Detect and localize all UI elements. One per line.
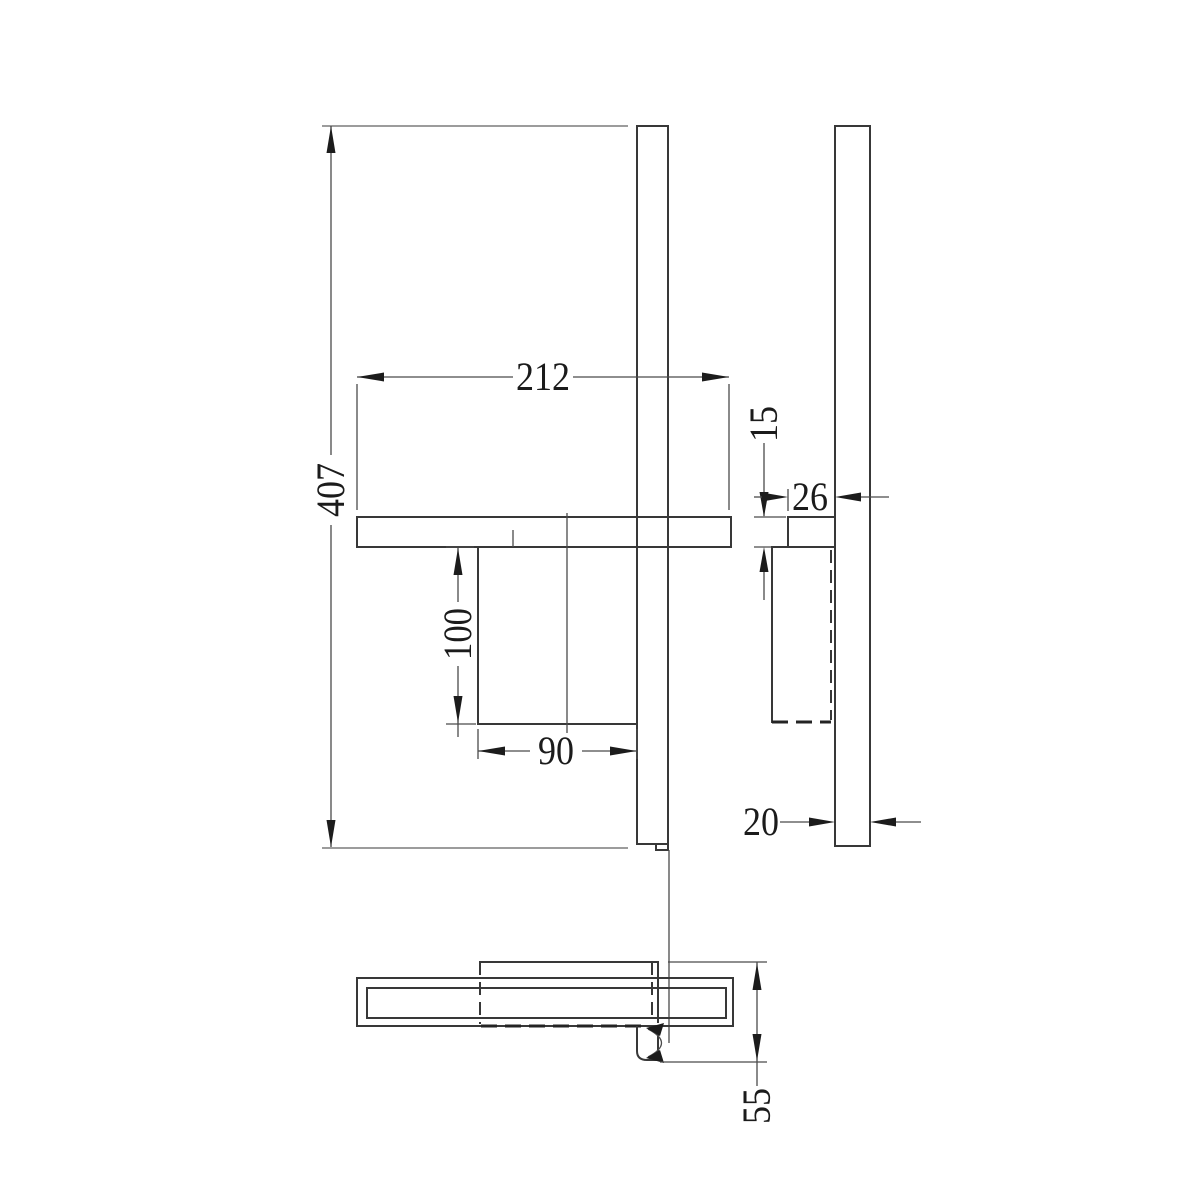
dim-holder-width: 90: [478, 728, 637, 773]
front-shelf: [357, 517, 731, 547]
top-view: [357, 962, 733, 1063]
arrow-up-icon: [327, 126, 336, 153]
arrow-left-icon: [870, 818, 896, 827]
arrow-left-icon: [478, 747, 505, 756]
dim-label-shelf-thickness: 15: [741, 406, 786, 442]
dim-holder-height: 100: [435, 547, 480, 737]
dim-overall-depth: 55: [660, 962, 779, 1124]
arrow-up-icon: [454, 548, 463, 575]
dim-label-rail-depth: 20: [743, 799, 779, 844]
arrow-down-icon: [454, 696, 463, 723]
arrow-down-icon: [753, 1034, 762, 1061]
dimensions: 407 212 100: [308, 126, 921, 1124]
dim-label-shelf-depth: 26: [792, 474, 828, 519]
dim-rail-depth: 20: [743, 799, 921, 844]
side-rail-bar: [835, 126, 870, 846]
dim-shelf-thickness: 15: [741, 406, 786, 600]
arrow-right-icon: [762, 493, 788, 502]
technical-drawing: 407 212 100: [0, 0, 1200, 1200]
arrow-right-icon: [702, 373, 729, 382]
arrow-left-icon: [357, 373, 384, 382]
drawing-canvas: 407 212 100: [0, 0, 1200, 1200]
arrow-left-icon: [835, 493, 861, 502]
arrow-up-icon: [753, 963, 762, 990]
dim-label-overall-depth: 55: [734, 1088, 779, 1124]
top-shelf-inner-frame: [367, 988, 726, 1018]
dim-label-holder-height: 100: [435, 608, 480, 660]
dim-shelf-depth: 26: [754, 474, 889, 519]
dim-shelf-width: 212: [357, 354, 729, 510]
front-view: [357, 126, 731, 1043]
arrow-down-icon: [327, 820, 336, 847]
front-rail-bar: [637, 126, 668, 844]
arrow-right-icon: [610, 747, 637, 756]
arrow-right-icon: [809, 818, 835, 827]
dim-overall-height: 407: [308, 126, 628, 848]
dim-label-holder-width: 90: [538, 728, 574, 773]
dim-label-shelf-width: 212: [516, 354, 570, 399]
front-rail-bottom-step: [656, 844, 668, 850]
arrow-up-icon: [760, 547, 769, 572]
dim-label-overall-height: 407: [308, 463, 353, 517]
side-shelf: [788, 517, 835, 547]
